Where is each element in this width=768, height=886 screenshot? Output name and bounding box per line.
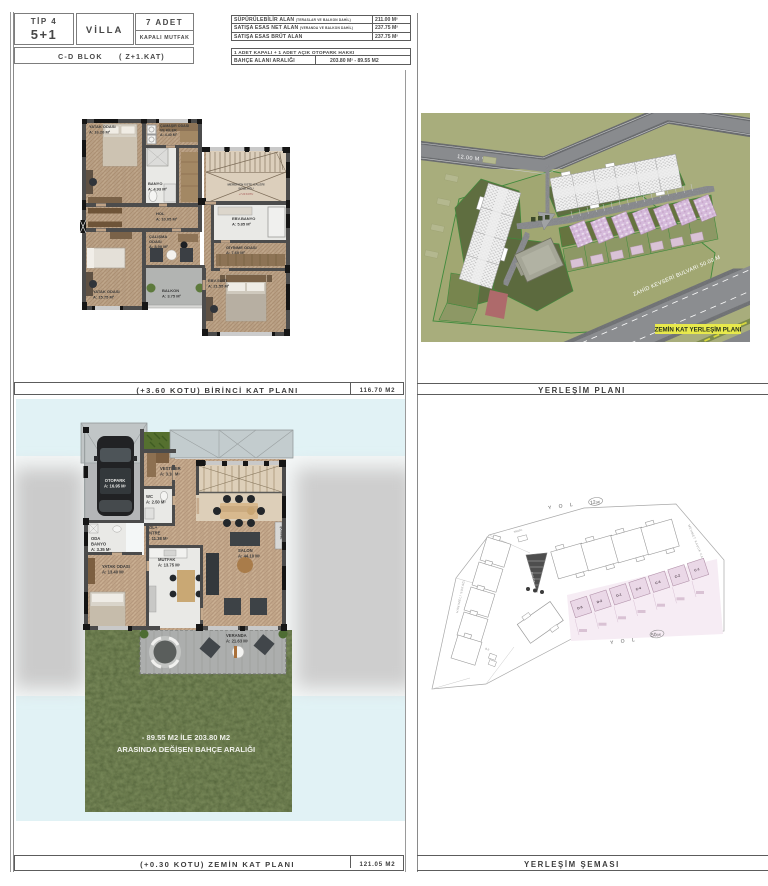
svg-text:SALON: SALON [238,548,253,553]
svg-text:50(M): 50(M) [651,632,662,639]
svg-text:A: 8.90 M²: A: 8.90 M² [149,244,169,249]
svg-text:A: 16.95 M¹: A: 16.95 M¹ [104,484,127,489]
svg-text:TRAFO: TRAFO [513,528,523,534]
svg-text:A: 10.05 M²: A: 10.05 M² [156,217,178,222]
svg-text:VESTİYER: VESTİYER [160,466,181,471]
svg-text:BANYO: BANYO [91,542,107,547]
svg-text:A: 21.63 M¹: A: 21.63 M¹ [226,639,249,644]
svg-text:- 89.55 M2 İLE 203.80 M2: - 89.55 M2 İLE 203.80 M2 [142,733,230,742]
svg-text:A: 11.38 M¹: A: 11.38 M¹ [146,536,168,541]
svg-text:YATAK ODASI: YATAK ODASI [89,124,116,129]
svg-text:BANYO: BANYO [148,181,162,186]
svg-text:A: 13.40 M¹: A: 13.40 M¹ [102,570,125,575]
svg-text:Y O L: Y O L [548,502,576,512]
svg-text:A: 4.40 M²: A: 4.40 M² [160,133,178,137]
svg-text:A: 21.55 M²: A: 21.55 M² [208,284,230,289]
svg-text:EBV.BANYO: EBV.BANYO [232,216,255,221]
svg-text:BALKON: BALKON [162,288,179,293]
svg-text:ZEMİN KAT YERLEŞİM PLANI: ZEMİN KAT YERLEŞİM PLANI [655,327,742,334]
svg-text:WC: WC [146,494,153,499]
svg-text:ODA: ODA [91,536,100,541]
svg-text:A: 15.75 M²: A: 15.75 M² [93,295,115,300]
svg-text:EBV.SUITI: EBV.SUITI [208,278,227,283]
svg-text:HOL: HOL [156,211,165,216]
svg-text:BOŞLUĞU: BOŞLUĞU [239,186,254,191]
svg-text:MUTFAK: MUTFAK [158,557,175,562]
svg-text:A: 4.93 M²: A: 4.93 M² [148,187,168,192]
svg-text:ÇAMAŞIR ODASI: ÇAMAŞIR ODASI [160,124,189,128]
svg-text:A: 44.10 M¹: A: 44.10 M¹ [238,554,261,559]
svg-text:12(M): 12(M) [590,499,601,506]
svg-text:OTOPARK: OTOPARK [105,478,126,483]
svg-text:A: 13.75 M¹: A: 13.75 M¹ [158,563,181,568]
svg-text:HANIMELİ SOKAĞI: HANIMELİ SOKAĞI [454,579,466,613]
svg-text:A: 3.10 M¹: A: 3.10 M¹ [160,472,180,477]
svg-text:A: 16.20 M²: A: 16.20 M² [89,130,111,135]
svg-text:A: 5.85 M²: A: 5.85 M² [232,222,252,227]
svg-text:B-2: B-2 [485,646,491,651]
svg-text:+7.20 KOTU: +7.20 KOTU [239,192,254,196]
svg-text:VERANDA: VERANDA [226,633,247,638]
svg-text:A: 3.35 M¹: A: 3.35 M¹ [91,547,111,552]
svg-text:A: 7.60 M²: A: 7.60 M² [226,250,246,255]
svg-text:A: 2.50 M¹: A: 2.50 M¹ [146,500,166,505]
svg-text:ARASINDA DEĞİŞEN BAHÇE ARALIĞI: ARASINDA DEĞİŞEN BAHÇE ARALIĞI [117,745,255,754]
svg-text:A: 3.75 M²: A: 3.75 M² [162,294,182,299]
svg-text:YATAK ODASI: YATAK ODASI [102,564,130,569]
svg-text:VE KİLER: VE KİLER [160,129,177,133]
svg-text:YATAK ODASI: YATAK ODASI [93,289,120,294]
